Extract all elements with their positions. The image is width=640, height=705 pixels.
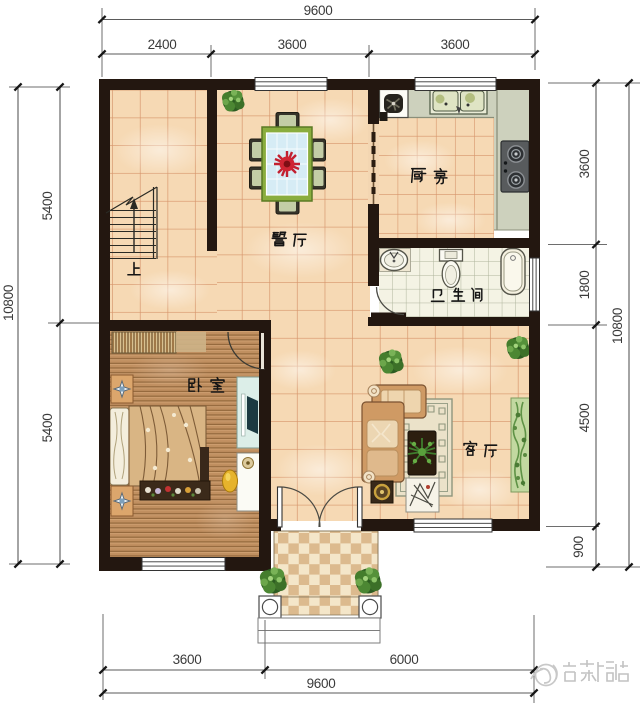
svg-text:10800: 10800 <box>1 285 16 321</box>
svg-text:1800: 1800 <box>577 271 592 300</box>
svg-text:9600: 9600 <box>307 676 336 691</box>
svg-text:900: 900 <box>571 536 586 558</box>
svg-text:4500: 4500 <box>577 404 592 433</box>
svg-text:3600: 3600 <box>278 37 307 52</box>
svg-text:6000: 6000 <box>390 652 419 667</box>
svg-text:5400: 5400 <box>40 192 55 221</box>
svg-text:9600: 9600 <box>304 3 333 18</box>
svg-text:3600: 3600 <box>577 150 592 179</box>
svg-text:3600: 3600 <box>173 652 202 667</box>
svg-text:3600: 3600 <box>441 37 470 52</box>
svg-text:2400: 2400 <box>148 37 177 52</box>
svg-text:5400: 5400 <box>40 414 55 443</box>
svg-text:10800: 10800 <box>610 308 625 344</box>
